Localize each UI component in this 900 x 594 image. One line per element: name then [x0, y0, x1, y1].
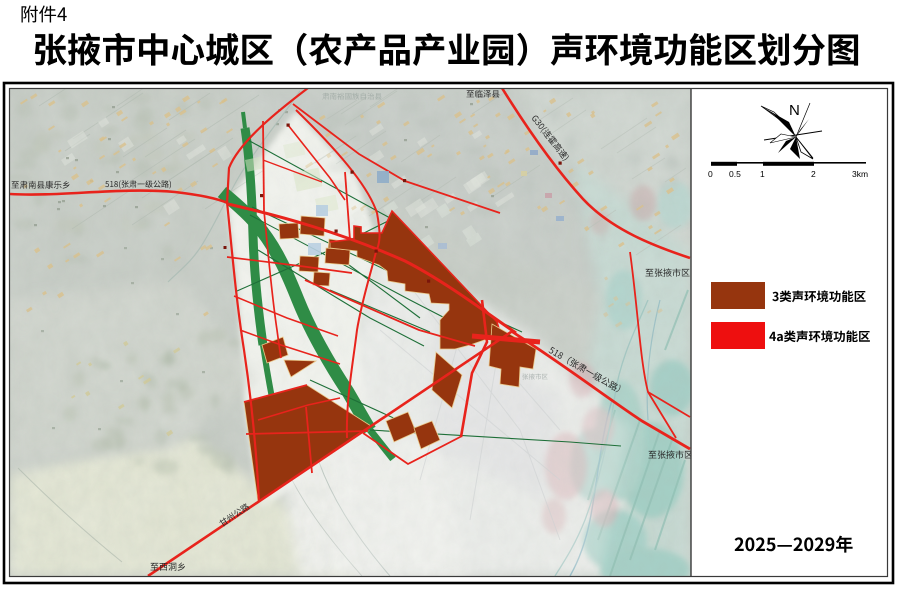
svg-text:2: 2 [811, 169, 816, 179]
svg-text:1: 1 [760, 169, 765, 179]
svg-text:0.5: 0.5 [729, 169, 741, 179]
svg-text:N: N [789, 102, 800, 119]
svg-text:3km: 3km [852, 169, 868, 179]
svg-text:0: 0 [708, 169, 713, 179]
